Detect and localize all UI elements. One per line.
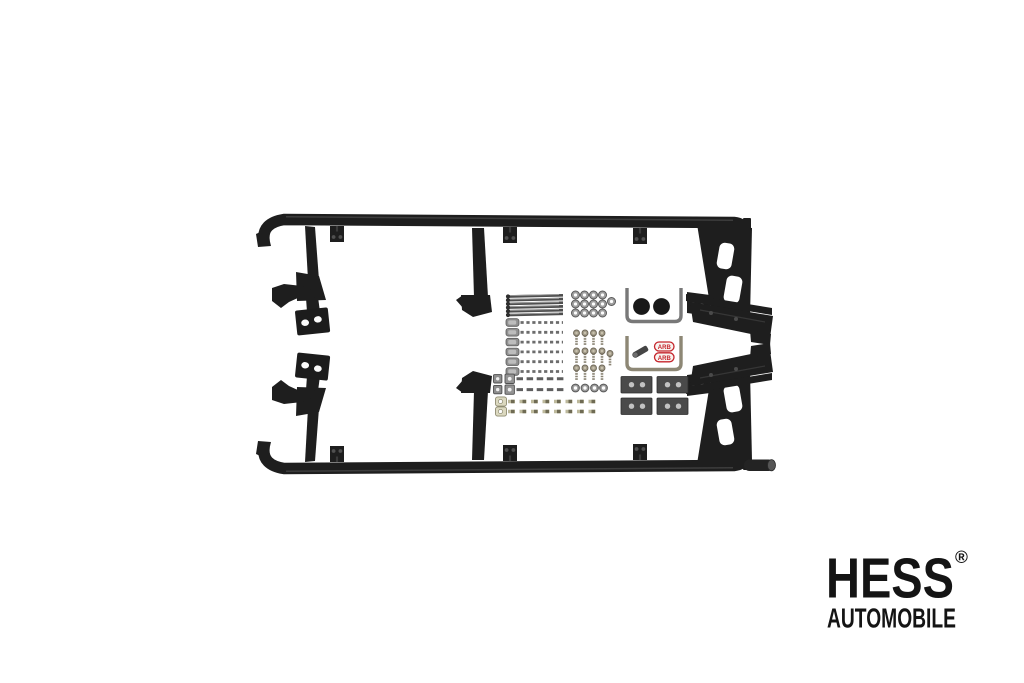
washer <box>608 298 616 306</box>
threaded-rod <box>506 313 563 317</box>
mounting-plate-set <box>621 377 688 415</box>
washer <box>599 309 607 317</box>
flange-bolt <box>506 368 563 376</box>
flange-bolt-set <box>506 319 563 376</box>
hex-bolt <box>582 365 588 380</box>
flange-bolt <box>506 329 563 337</box>
washer <box>572 309 580 317</box>
nut <box>600 384 608 392</box>
plate-bolt-set <box>494 374 567 394</box>
u-bracket-with-rubber-caps <box>627 288 681 322</box>
middle-leg-foot <box>461 295 492 317</box>
nut <box>591 384 599 392</box>
hex-bolt <box>607 351 613 366</box>
arb-sticker-label: ARB <box>658 356 672 362</box>
brand-subtitle: AUTOMOBILE <box>827 603 956 634</box>
washer <box>572 300 580 308</box>
washer <box>581 309 589 317</box>
washer <box>599 300 607 308</box>
plate-hole <box>709 311 713 315</box>
hex-bolt <box>599 348 605 363</box>
registered-mark: ® <box>955 547 968 567</box>
washer <box>572 291 580 299</box>
bottom-tube-end <box>744 460 776 472</box>
hex-bolt <box>582 330 588 345</box>
zinc-bolt-set <box>496 397 599 416</box>
rubber-cap <box>653 298 670 315</box>
hex-bolt <box>574 330 580 345</box>
hex-bolt <box>591 330 597 345</box>
mounting-plate <box>657 377 688 394</box>
washer <box>581 300 589 308</box>
flange-bolt <box>506 338 563 346</box>
hex-bolt <box>599 365 605 380</box>
product-image-canvas: ARB ARB HESS ® AUTOMOBILE <box>0 0 1024 683</box>
nut-set <box>572 384 608 392</box>
zinc-bolt <box>496 397 599 406</box>
arb-sticker-label: ARB <box>658 345 672 351</box>
flange-bolt <box>506 358 563 366</box>
plate-hole <box>734 317 738 321</box>
nut <box>581 384 589 392</box>
washer <box>599 291 607 299</box>
mounting-tab <box>503 227 517 243</box>
product-photo: ARB ARB HESS ® AUTOMOBILE <box>0 0 1024 683</box>
mounting-plate <box>621 377 652 394</box>
arb-sticker: ARB <box>655 342 675 351</box>
left-end-plate <box>295 307 330 335</box>
rubber-cap <box>633 298 650 315</box>
nut <box>572 384 580 392</box>
plate-bolt <box>494 385 567 394</box>
washer <box>590 309 598 317</box>
mounting-plate <box>657 398 688 415</box>
left-leg-post <box>305 226 319 280</box>
arb-sticker: ARB <box>655 353 675 362</box>
hex-bolt <box>574 348 580 363</box>
clamp-fitting <box>632 345 649 359</box>
plate-bolt <box>494 374 567 383</box>
brand-logo: HESS ® AUTOMOBILE <box>826 547 968 634</box>
washer <box>590 291 598 299</box>
hex-bolt <box>599 330 605 345</box>
hex-bolt-set <box>574 330 614 380</box>
flange-bolt <box>506 348 563 356</box>
zinc-bolt <box>496 407 599 416</box>
threaded-rod-set <box>506 294 563 317</box>
mounting-tab <box>330 226 344 242</box>
flange-bolt <box>506 319 563 327</box>
u-bracket-with-stickers: ARB ARB <box>627 336 681 370</box>
washer-set <box>572 291 616 317</box>
washer <box>581 291 589 299</box>
hex-bolt <box>574 365 580 380</box>
mounting-tab <box>633 228 647 244</box>
middle-leg-spur <box>456 295 463 308</box>
fitting-kit: ARB ARB <box>494 288 689 416</box>
middle-leg-post <box>472 228 488 297</box>
mounting-plate <box>621 398 652 415</box>
brand-name: HESS <box>826 547 954 611</box>
washer <box>590 300 598 308</box>
hex-bolt <box>591 348 597 363</box>
hex-bolt <box>591 365 597 380</box>
hex-bolt <box>582 348 588 363</box>
